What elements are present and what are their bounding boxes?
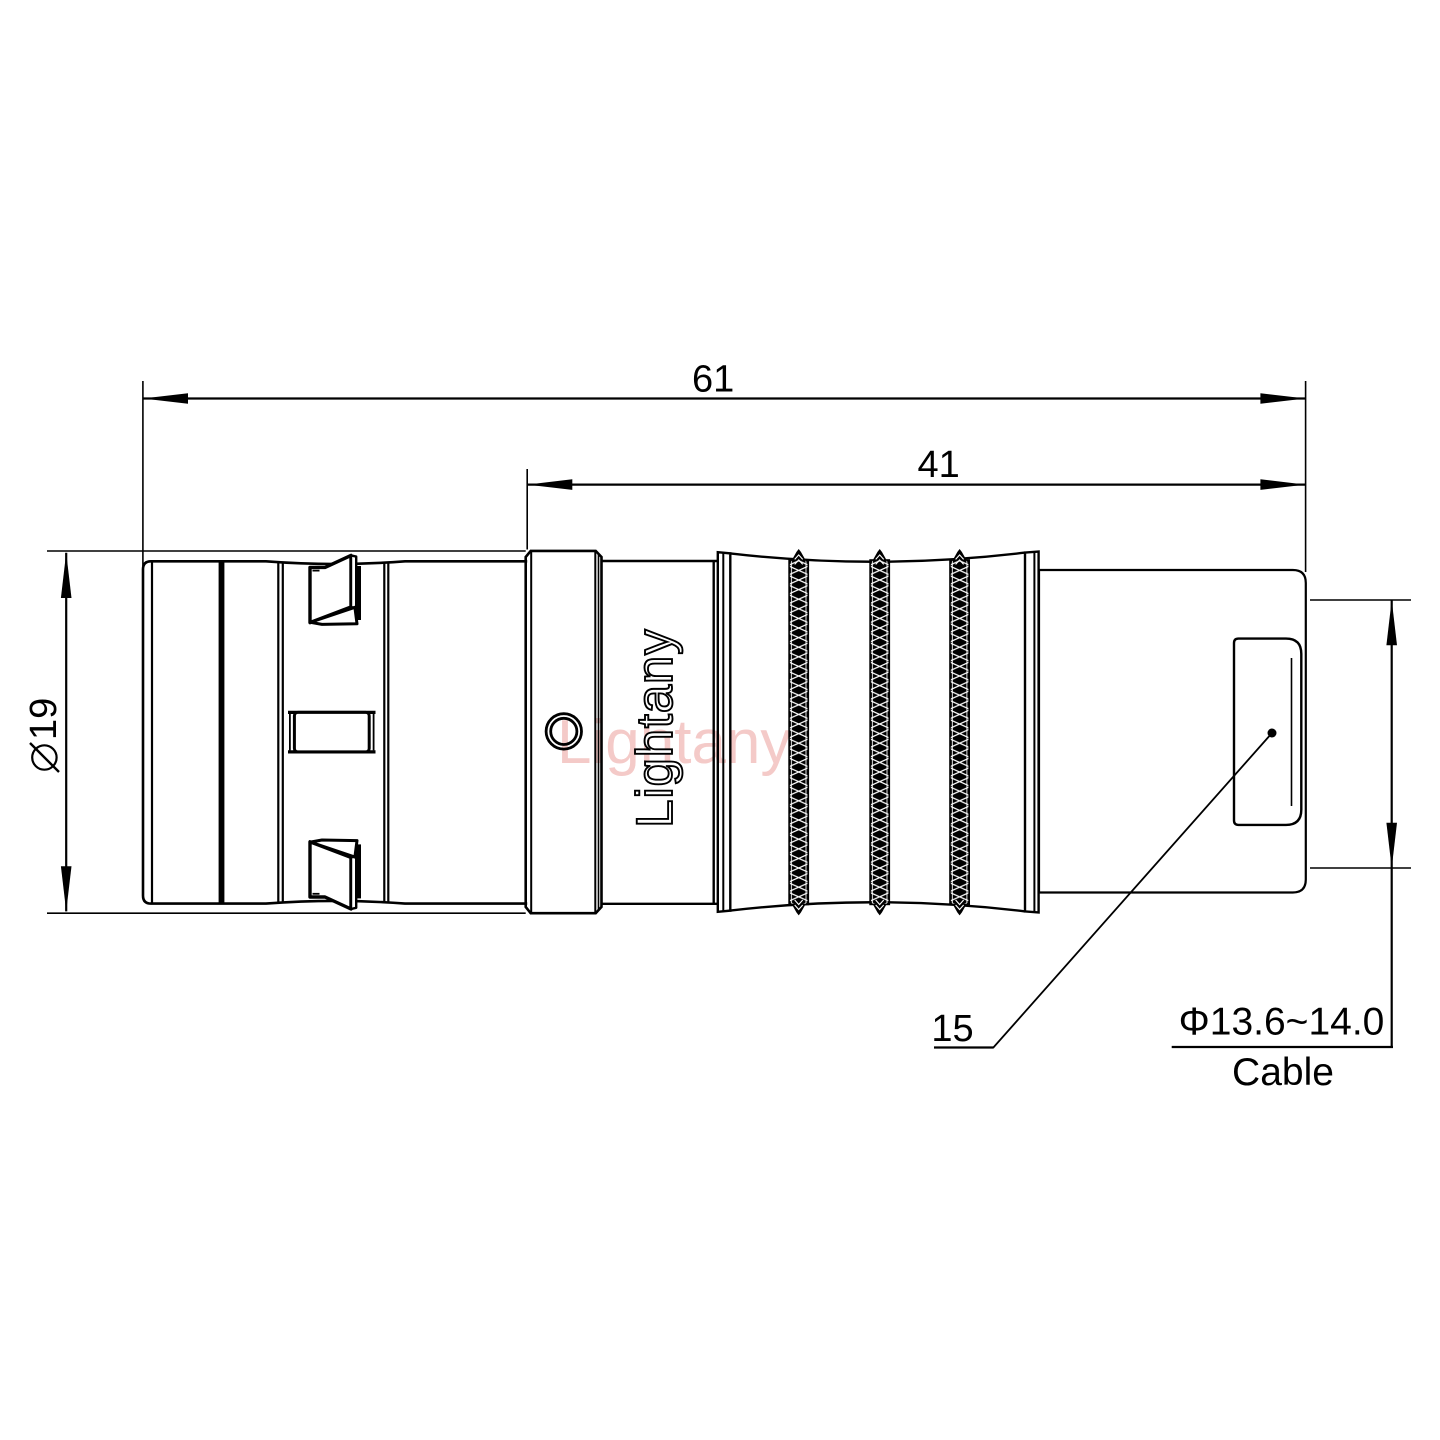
svg-text:61: 61 [692,359,734,401]
svg-text:41: 41 [918,444,960,486]
svg-text:15: 15 [931,1008,973,1050]
svg-text:Lightany: Lightany [626,629,683,828]
svg-text:Φ13.6~14.0: Φ13.6~14.0 [1179,1001,1385,1044]
svg-text:Cable: Cable [1232,1051,1334,1094]
svg-text:19: 19 [23,698,65,740]
